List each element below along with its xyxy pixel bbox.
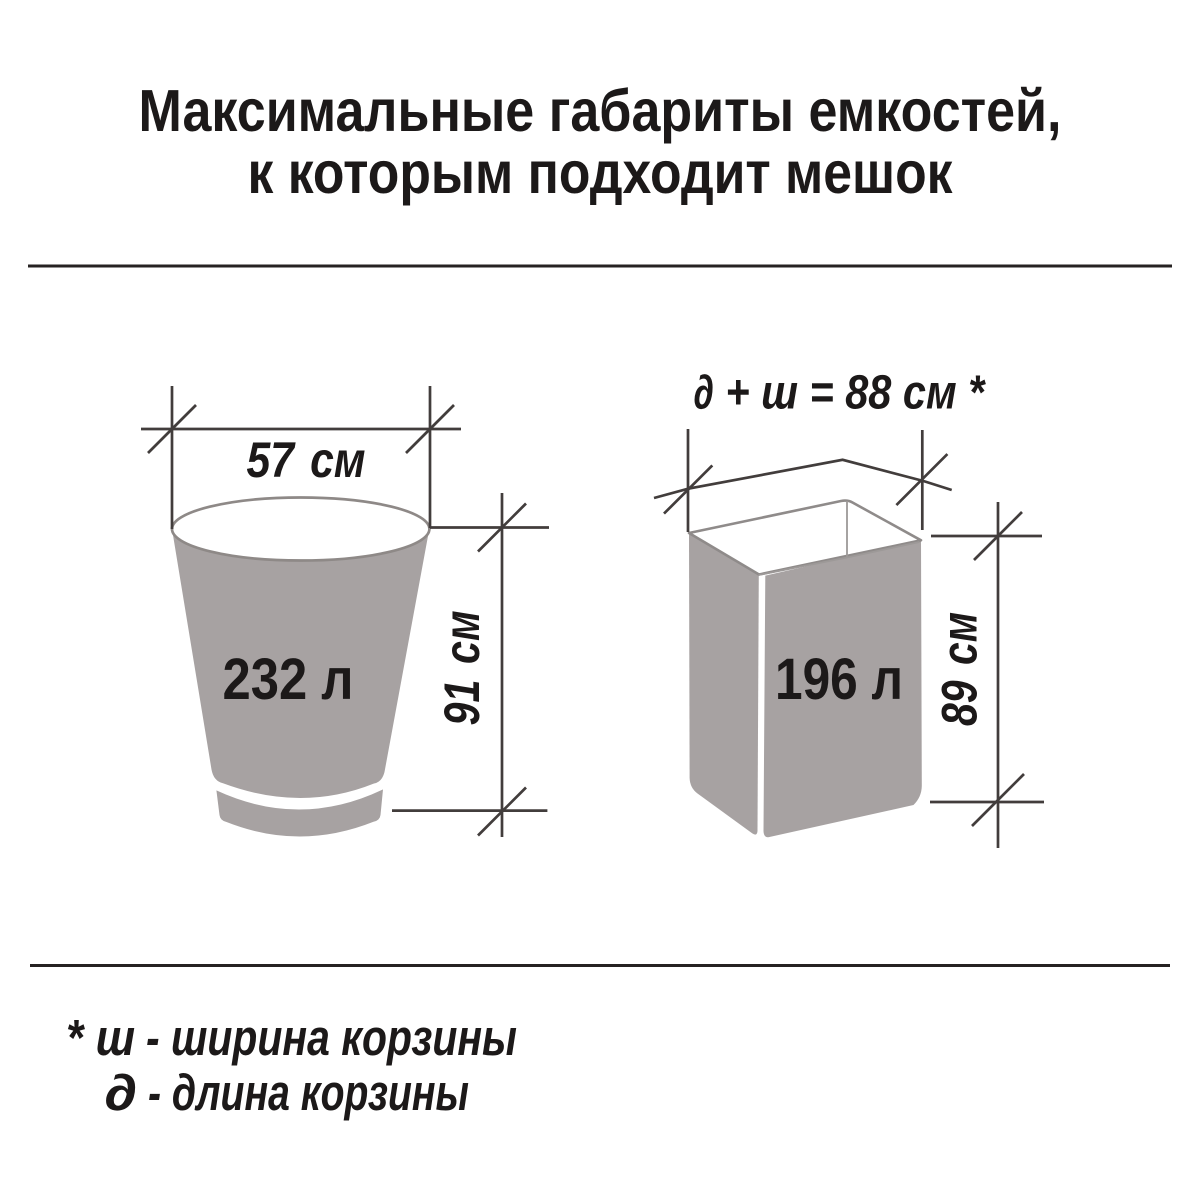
svg-text:∂: ∂ xyxy=(104,1064,137,1121)
svg-text:89 см: 89 см xyxy=(932,612,988,726)
svg-text:91 см: 91 см xyxy=(434,610,490,725)
svg-text:* ш: * ш xyxy=(66,1009,135,1066)
svg-text:Максимальные габариты емкостей: Максимальные габариты емкостей, xyxy=(139,78,1062,144)
svg-text:- ширина корзины: - ширина корзины xyxy=(146,1009,517,1066)
svg-text:- длина корзины: - длина корзины xyxy=(148,1064,469,1121)
svg-text:∂ + ш = 88 см *: ∂ + ш = 88 см * xyxy=(693,367,986,420)
svg-text:к которым подходит мешок: к которым подходит мешок xyxy=(248,140,953,206)
svg-text:57 см: 57 см xyxy=(247,432,366,488)
svg-text:232 л: 232 л xyxy=(223,647,354,712)
svg-text:196 л: 196 л xyxy=(775,647,903,712)
